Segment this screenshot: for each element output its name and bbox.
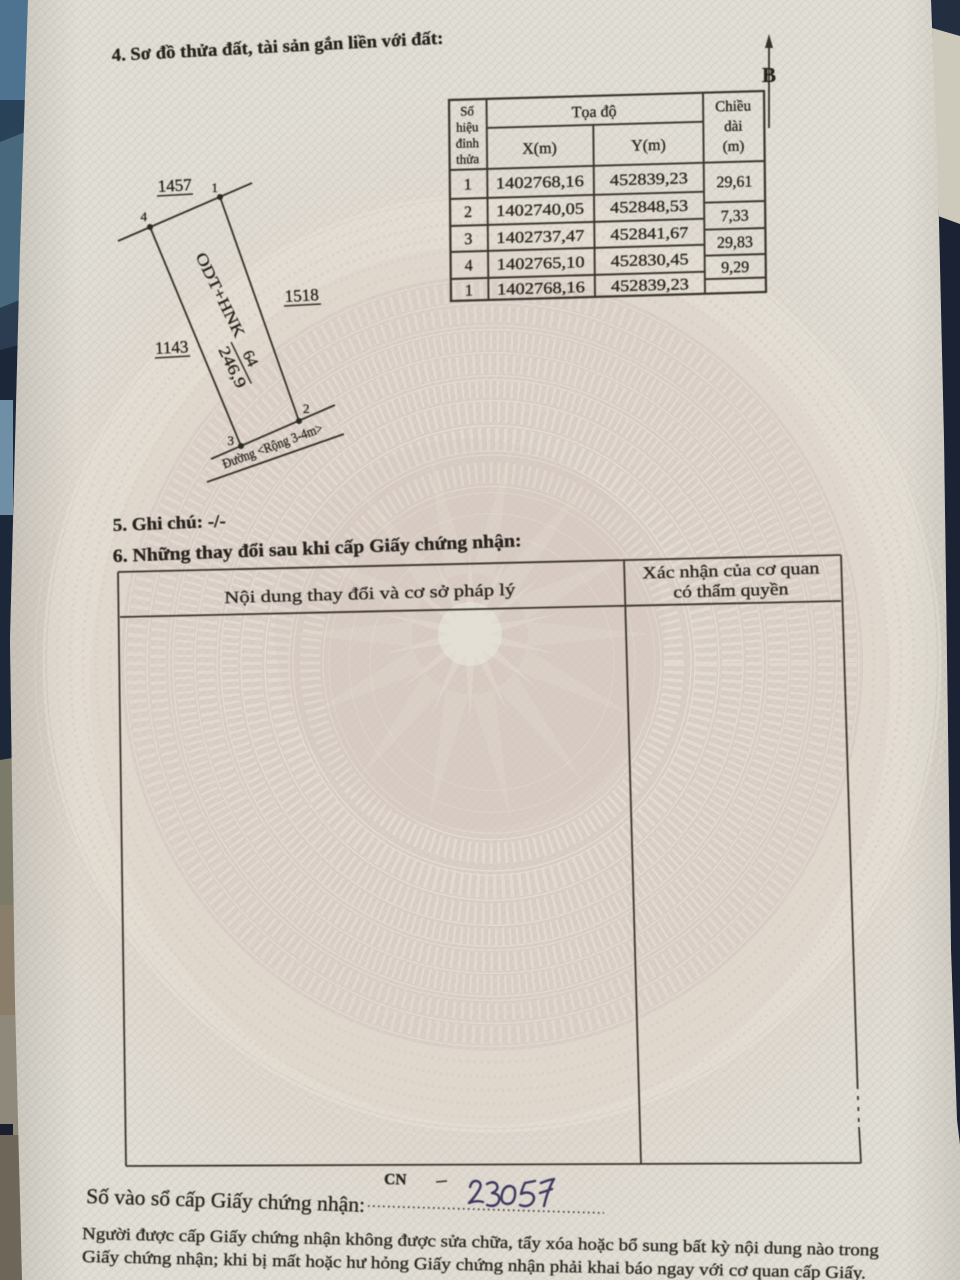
svg-text:1: 1 <box>464 176 472 193</box>
svg-text:Tọa độ: Tọa độ <box>572 103 617 121</box>
svg-text:1402740,05: 1402740,05 <box>496 201 584 221</box>
svg-text:3: 3 <box>464 231 472 248</box>
svg-text:1457: 1457 <box>157 175 192 196</box>
svg-text:452830,45: 452830,45 <box>611 251 689 270</box>
svg-text:dài: dài <box>724 119 742 136</box>
svg-text:có thẩm quyền: có thẩm quyền <box>673 579 789 601</box>
svg-text:452839,23: 452839,23 <box>611 276 689 295</box>
svg-text:4: 4 <box>465 257 473 274</box>
svg-text:hiệu: hiệu <box>456 119 479 135</box>
svg-text:29,61: 29,61 <box>716 173 752 191</box>
svg-text:1402737,47: 1402737,47 <box>496 228 584 248</box>
svg-text:7,33: 7,33 <box>721 207 749 225</box>
svg-text:9,29: 9,29 <box>721 259 749 277</box>
svg-text:1: 1 <box>212 180 219 195</box>
svg-text:452841,67: 452841,67 <box>610 225 688 244</box>
svg-text:Y(m): Y(m) <box>631 137 666 155</box>
svg-text:2: 2 <box>464 204 472 221</box>
svg-text:452848,53: 452848,53 <box>610 198 688 217</box>
svg-text:4: 4 <box>141 209 148 224</box>
svg-text:đỉnh: đỉnh <box>456 135 480 151</box>
svg-text:1143: 1143 <box>155 337 189 358</box>
svg-text:CN: CN <box>384 1171 407 1188</box>
svg-text:(m): (m) <box>723 139 745 156</box>
svg-text:Số: Số <box>460 103 474 118</box>
svg-text:2: 2 <box>303 401 310 416</box>
svg-text:thửa: thửa <box>456 151 479 167</box>
svg-text:1402768,16: 1402768,16 <box>496 173 584 193</box>
svg-text:1518: 1518 <box>284 285 319 306</box>
svg-text:3: 3 <box>228 433 235 448</box>
svg-text:1402768,16: 1402768,16 <box>497 279 585 299</box>
svg-text:Chiều: Chiều <box>715 98 751 115</box>
svg-text:X(m): X(m) <box>522 140 557 158</box>
svg-text:1: 1 <box>465 282 473 299</box>
svg-text:29,83: 29,83 <box>717 234 753 252</box>
svg-text:B: B <box>762 63 776 87</box>
svg-text:452839,23: 452839,23 <box>610 170 688 189</box>
svg-text:1402765,10: 1402765,10 <box>497 254 585 274</box>
